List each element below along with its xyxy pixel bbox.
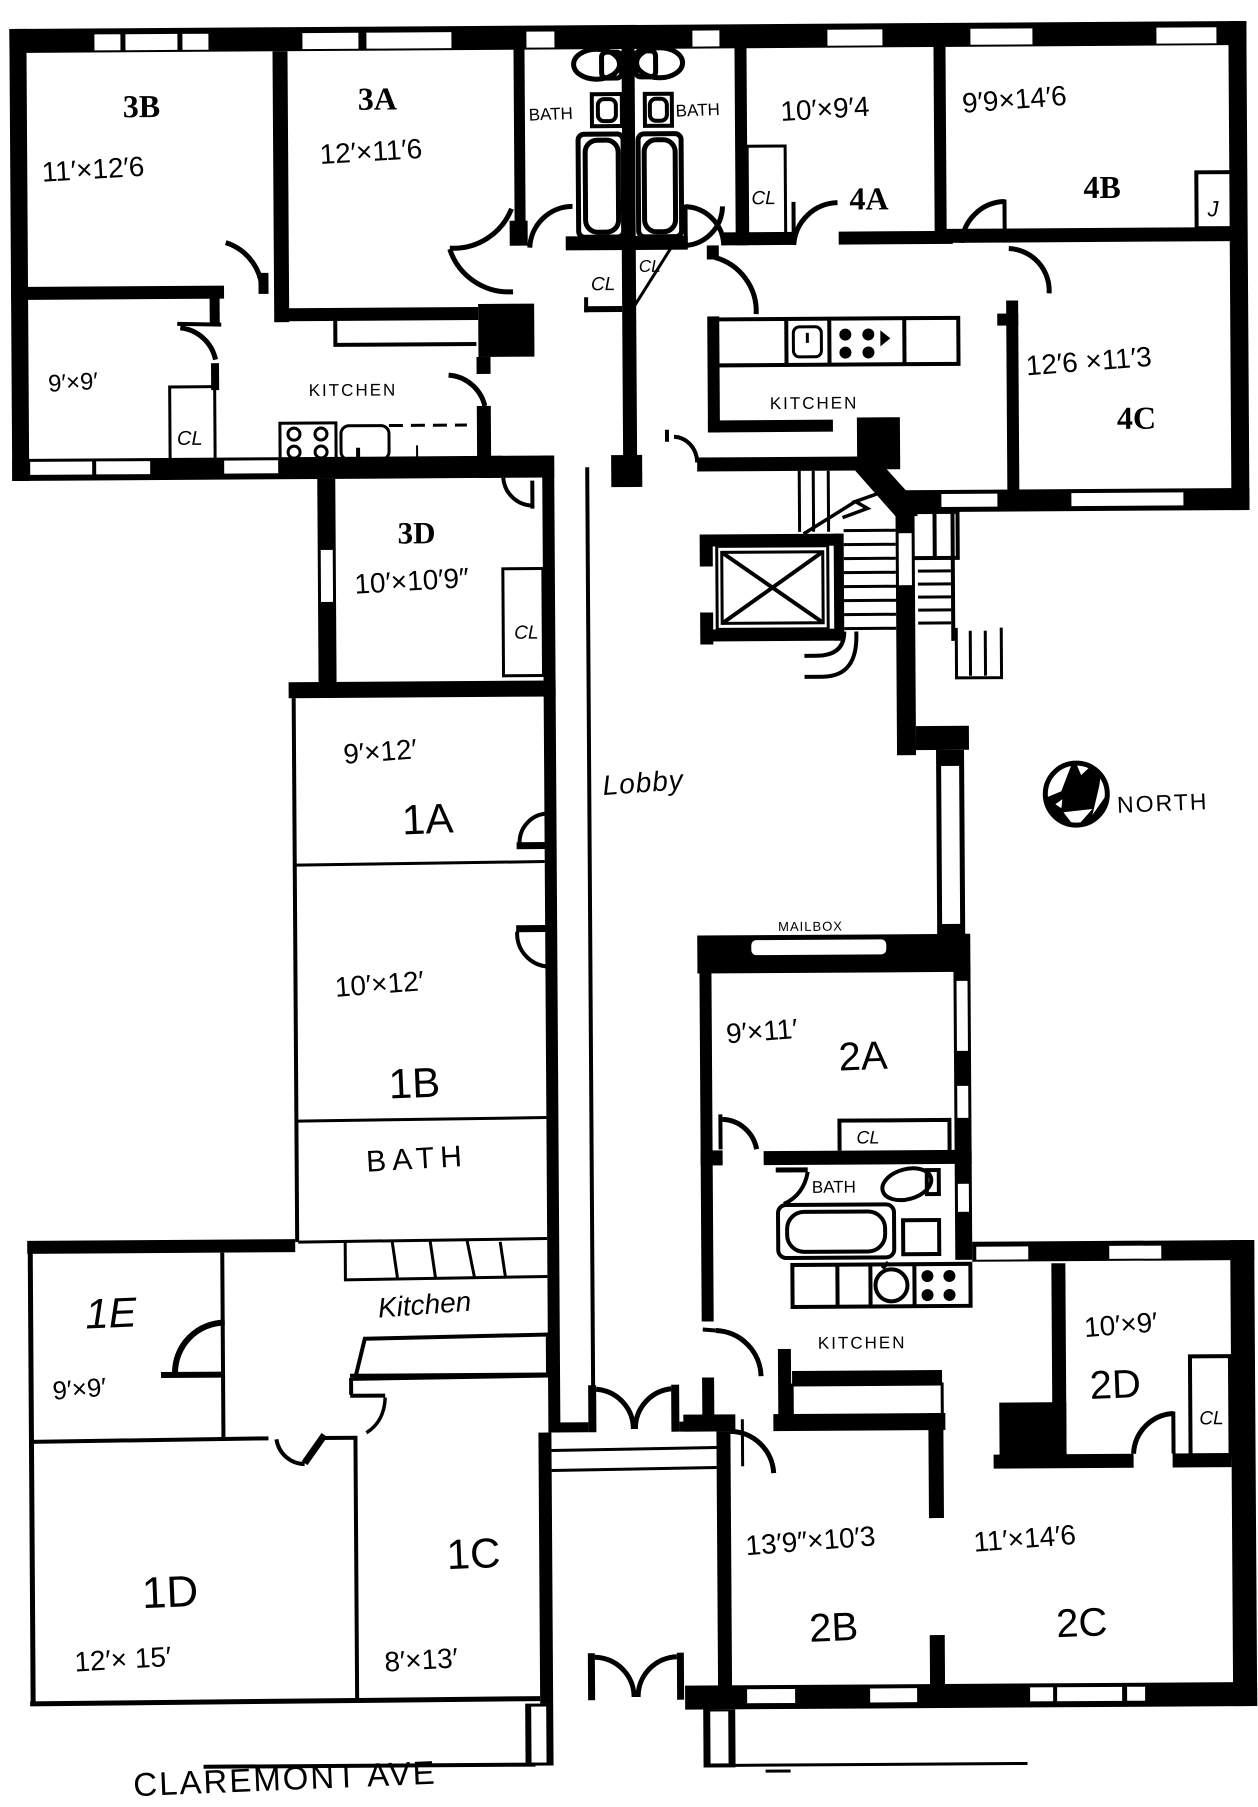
svg-text:8′×13′: 8′×13′	[383, 1642, 458, 1677]
svg-text:1B: 1B	[388, 1058, 441, 1107]
svg-text:10′×9′4: 10′×9′4	[779, 91, 870, 127]
svg-text:1E: 1E	[84, 1288, 138, 1337]
svg-text:Lobby: Lobby	[601, 764, 685, 801]
svg-text:CL: CL	[514, 623, 538, 644]
svg-text:KITCHEN: KITCHEN	[770, 394, 859, 414]
svg-text:2D: 2D	[1089, 1362, 1142, 1408]
svg-text:1C: 1C	[446, 1529, 502, 1578]
svg-text:9′×11′: 9′×11′	[725, 1013, 799, 1049]
svg-text:2A: 2A	[838, 1034, 889, 1080]
svg-text:BATH: BATH	[812, 1178, 856, 1197]
svg-text:10′×9′: 10′×9′	[1083, 1307, 1159, 1344]
svg-text:9′×9′: 9′×9′	[51, 1372, 107, 1406]
svg-text:1D: 1D	[141, 1567, 199, 1618]
svg-text:MAILBOX: MAILBOX	[778, 919, 843, 934]
svg-text:9′×9′: 9′×9′	[47, 368, 99, 398]
svg-text:3A: 3A	[358, 80, 397, 116]
svg-text:2C: 2C	[1055, 1600, 1108, 1646]
svg-text:2B: 2B	[808, 1605, 859, 1651]
svg-text:KITCHEN: KITCHEN	[818, 1333, 907, 1353]
svg-text:11′×12′6: 11′×12′6	[41, 151, 145, 188]
svg-text:4A: 4A	[849, 180, 888, 216]
svg-text:CL: CL	[1199, 1408, 1223, 1429]
svg-text:CL: CL	[177, 428, 203, 450]
svg-text:12′× 15′: 12′× 15′	[73, 1641, 172, 1678]
svg-text:J: J	[1206, 196, 1219, 221]
svg-text:BATH: BATH	[365, 1140, 469, 1179]
svg-text:1A: 1A	[401, 794, 454, 843]
svg-text:BATH: BATH	[675, 100, 720, 121]
svg-text:CL: CL	[639, 257, 661, 276]
svg-text:3D: 3D	[397, 515, 435, 550]
svg-text:12′×11′6: 12′×11′6	[319, 133, 423, 170]
svg-text:9′×12′: 9′×12′	[342, 733, 418, 770]
svg-text:4C: 4C	[1117, 400, 1156, 436]
svg-text:3B: 3B	[123, 88, 161, 124]
svg-text:CL: CL	[751, 188, 775, 209]
svg-text:KITCHEN: KITCHEN	[309, 380, 398, 400]
svg-text:CL: CL	[591, 274, 615, 295]
svg-text:4B: 4B	[1083, 169, 1121, 205]
svg-text:NORTH: NORTH	[1117, 788, 1209, 818]
svg-text:BATH: BATH	[528, 104, 573, 125]
svg-text:CL: CL	[856, 1127, 879, 1147]
